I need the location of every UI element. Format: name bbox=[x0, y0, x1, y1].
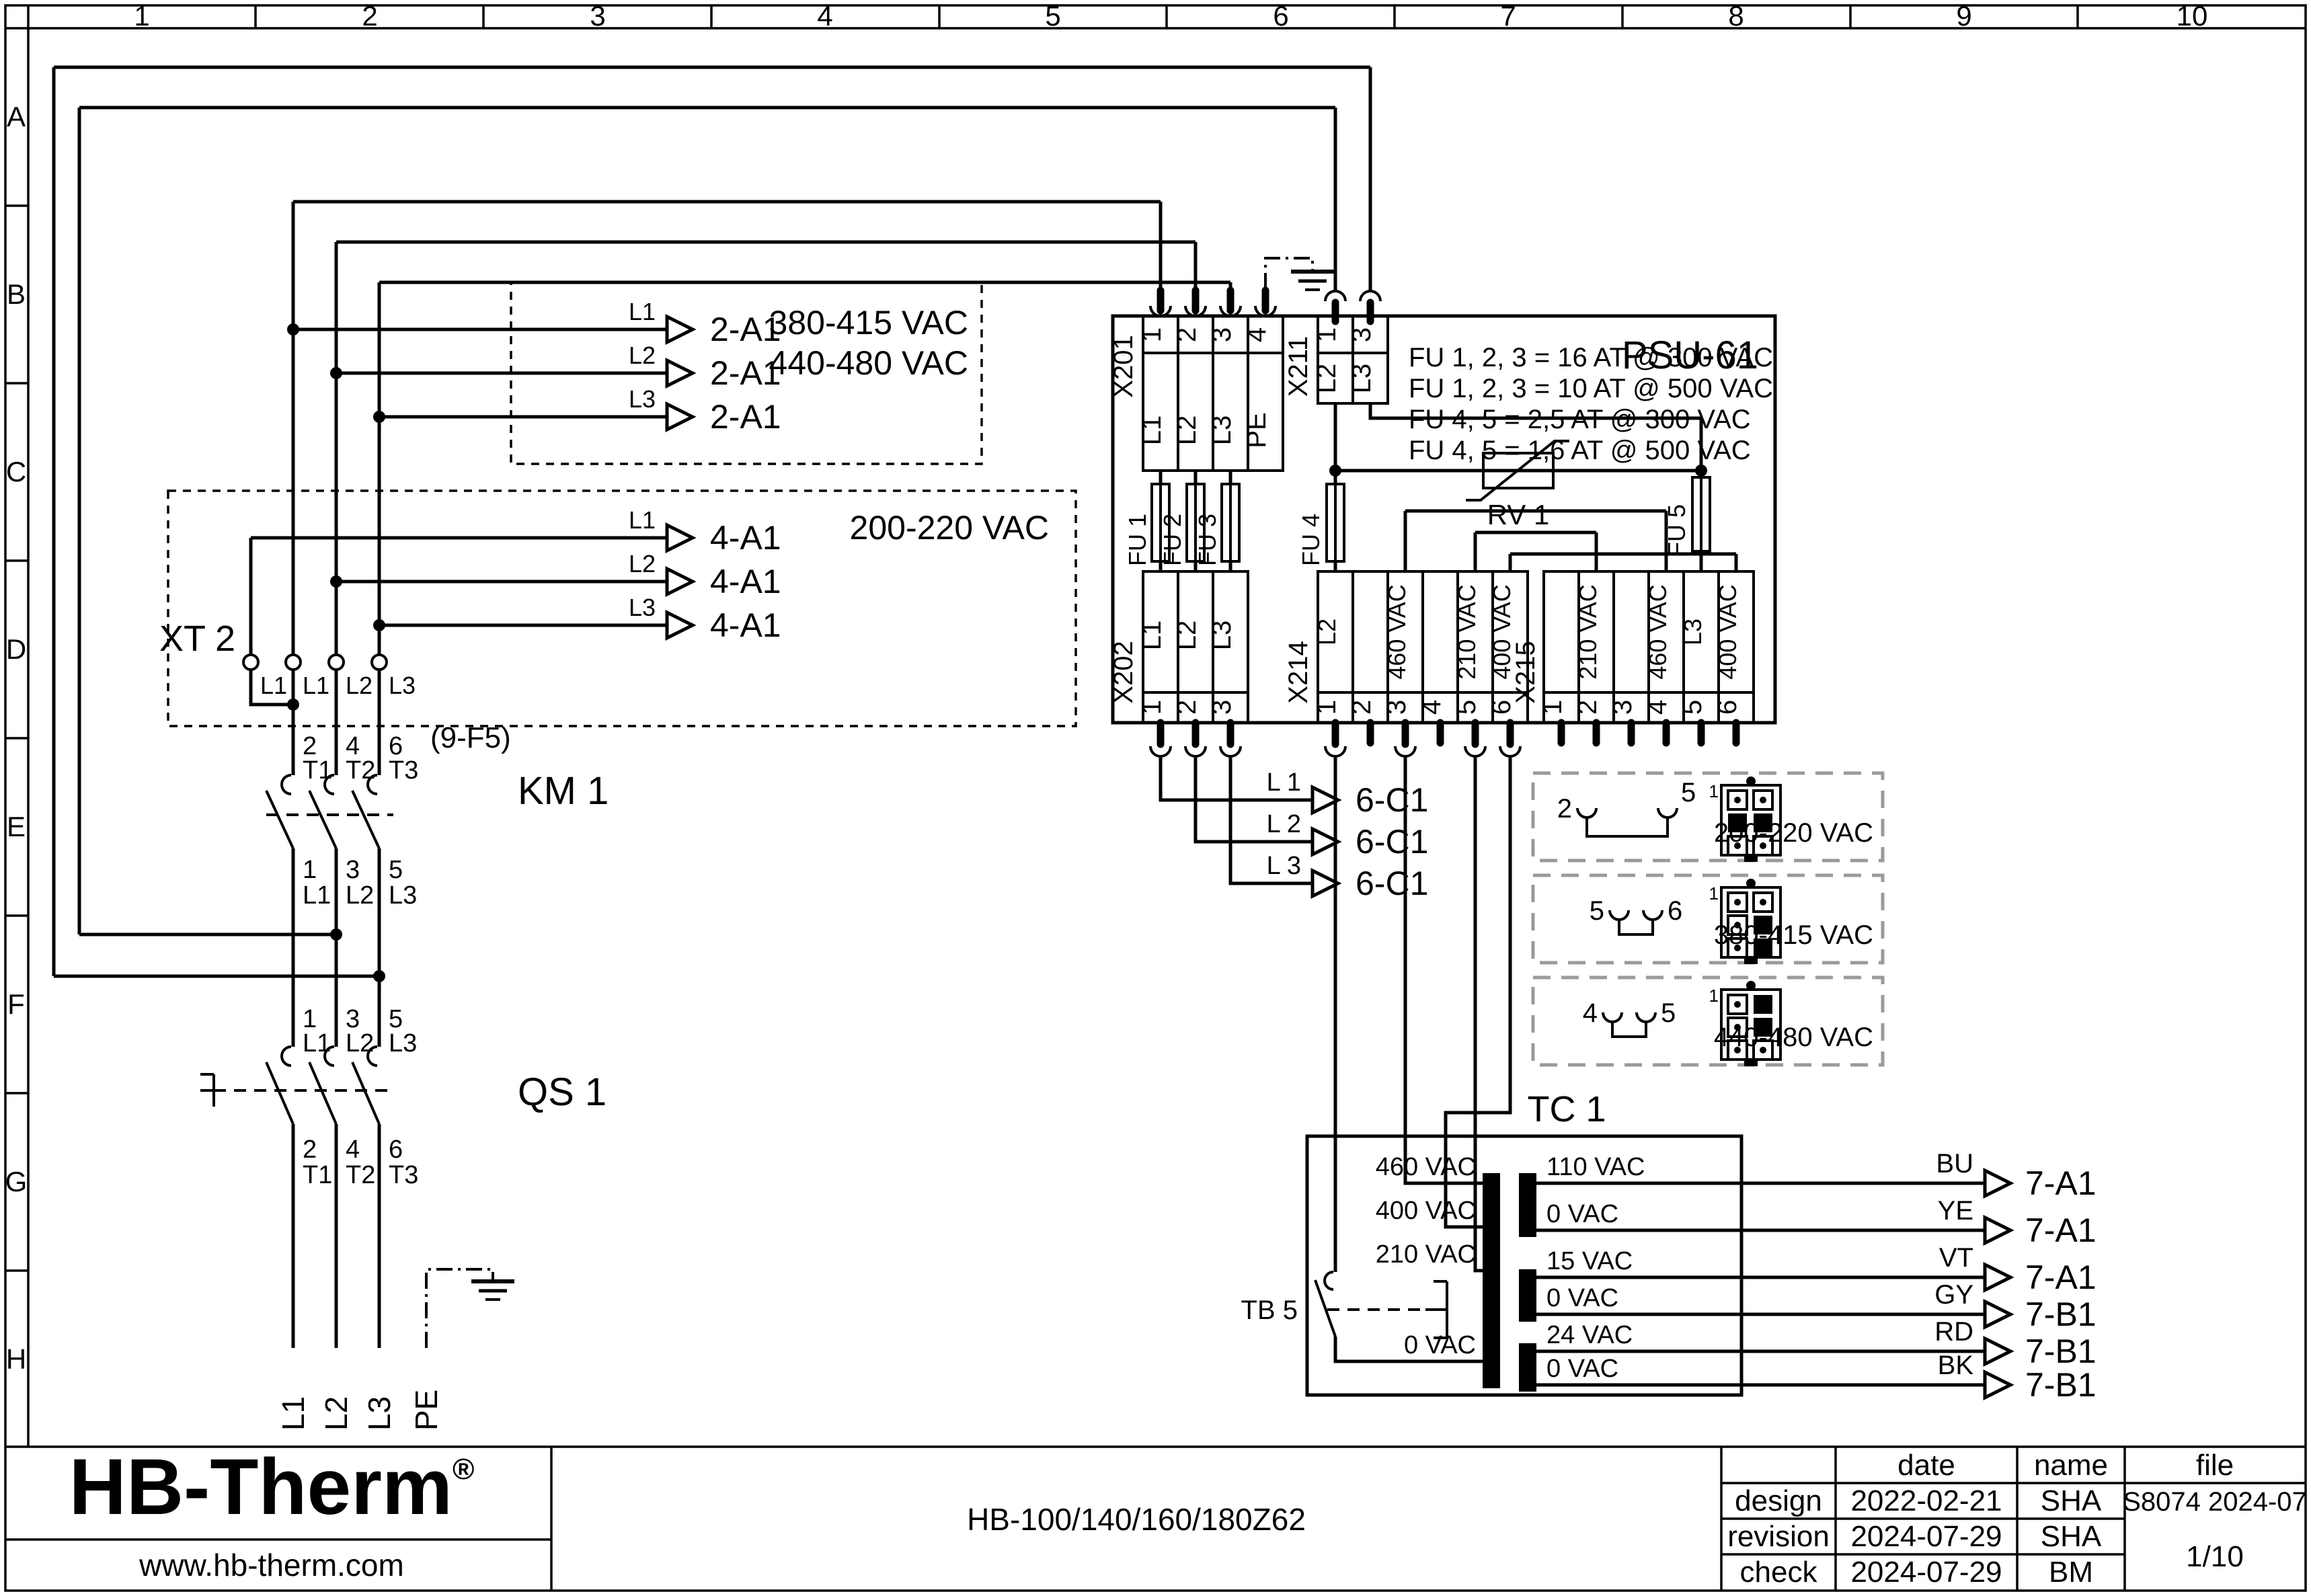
pole-label: T2 bbox=[346, 756, 375, 785]
row-label: B bbox=[7, 278, 26, 310]
pin-label: L3 bbox=[1207, 621, 1237, 651]
page-number: 1/10 bbox=[2186, 1540, 2244, 1573]
pin-num: 2 bbox=[1172, 700, 1202, 715]
phase-label-l3: L3 bbox=[362, 1396, 397, 1431]
plug-stub-icons-x215 bbox=[1561, 723, 1736, 743]
revision-date: 2024-07-29 bbox=[1850, 1520, 2002, 1553]
wire-label: L3 bbox=[629, 385, 656, 413]
tc1-secondary-core-2 bbox=[1519, 1269, 1536, 1322]
xt2-terminal-label: L1 bbox=[303, 672, 329, 699]
secondary-tap: 0 VAC bbox=[1546, 1355, 1618, 1383]
pin-num: 3 bbox=[1382, 700, 1411, 715]
terminal-xt2: XT 2 L1 L1 L2 L3 bbox=[159, 619, 416, 711]
pin-num: 1 bbox=[1312, 327, 1341, 342]
pole-num: 1 bbox=[303, 856, 317, 884]
row-design: design bbox=[1735, 1484, 1822, 1517]
row-label: G bbox=[5, 1166, 28, 1197]
psu-61: PSU-61 FU 1, 2, 3 = 16 AT @ 300 VAC FU 1… bbox=[1109, 258, 1775, 756]
col-label: 1 bbox=[134, 0, 149, 32]
secondary-tap: 110 VAC bbox=[1546, 1153, 1645, 1181]
selector-200-220: 2 5 1 200-220 VAC bbox=[1533, 773, 1883, 862]
terminal-x215: X215 1 2 3 4 5 6 210 VAC 460 VAC L3 400 … bbox=[1511, 561, 1754, 743]
secondary-tap: 15 VAC bbox=[1546, 1247, 1633, 1275]
pin-label: L2 bbox=[1172, 415, 1202, 446]
col-label: 3 bbox=[590, 0, 605, 32]
jumper-pin: 5 bbox=[1590, 896, 1604, 926]
selector-voltage: 380-415 VAC bbox=[1714, 920, 1873, 950]
wire-color: GY bbox=[1934, 1280, 1973, 1310]
pole-label: L2 bbox=[346, 881, 374, 910]
design-date: 2022-02-21 bbox=[1850, 1484, 2002, 1517]
rv1-label: RV 1 bbox=[1487, 499, 1550, 530]
pole-label: T3 bbox=[389, 1161, 418, 1189]
design-name: SHA bbox=[2041, 1484, 2102, 1517]
pole-num: 6 bbox=[389, 1135, 403, 1164]
x202-name: X202 bbox=[1109, 641, 1138, 703]
pole-label: L3 bbox=[389, 881, 417, 910]
voltage-selector-boxes: 2 5 1 200-220 VAC 5 6 1 bbox=[1533, 773, 1883, 1066]
wire-label: L 3 bbox=[1267, 852, 1301, 880]
primary-tap: 0 VAC bbox=[1404, 1331, 1476, 1359]
qs1-handle-icon bbox=[200, 1074, 214, 1107]
jumper-pin: 4 bbox=[1583, 998, 1598, 1028]
row-revision: revision bbox=[1727, 1520, 1830, 1553]
pin-num: 5 bbox=[1452, 700, 1481, 715]
row-label: F bbox=[7, 988, 25, 1020]
wire-label: L 2 bbox=[1267, 810, 1301, 838]
pin-label: L2 bbox=[1312, 364, 1341, 394]
wire-color: BU bbox=[1936, 1149, 1973, 1179]
pin-label: 460 VAC bbox=[1383, 584, 1411, 679]
th-file: file bbox=[2196, 1449, 2234, 1482]
km1-ref: (9-F5) bbox=[430, 721, 511, 754]
tc1-name: TC 1 bbox=[1527, 1089, 1606, 1129]
disconnector-qs1: QS 1 1 L1 3 L2 5 L3 2 T1 4 T2 6 T3 bbox=[200, 1005, 606, 1189]
jumper-pin: 5 bbox=[1681, 778, 1696, 807]
jumper-pin: 6 bbox=[1668, 896, 1682, 926]
wire-target: 2-A1 bbox=[710, 398, 781, 436]
pin-num: 2 bbox=[1347, 700, 1376, 715]
hv-voltage-line1: 380-415 VAC bbox=[769, 304, 968, 342]
pole-num: 5 bbox=[389, 856, 403, 884]
row-label: H bbox=[6, 1343, 26, 1375]
plug-socket-icons-x214 bbox=[1325, 723, 1520, 756]
wire-label: L1 bbox=[629, 298, 656, 325]
pin-label: 210 VAC bbox=[1574, 584, 1602, 679]
xt2-terminal-label: L3 bbox=[389, 672, 416, 699]
fuse-label: FU 2 bbox=[1159, 514, 1186, 566]
tb5-label: TB 5 bbox=[1241, 1295, 1298, 1325]
wire-label: L1 bbox=[629, 506, 656, 534]
pin-label: 460 VAC bbox=[1644, 584, 1672, 679]
arrow-4a1 bbox=[667, 525, 693, 551]
wire-target: 6-C1 bbox=[1356, 781, 1428, 819]
primary-tap: 460 VAC bbox=[1376, 1153, 1476, 1181]
pole-label: L3 bbox=[389, 1029, 417, 1058]
tc1-secondary-core-3 bbox=[1519, 1343, 1536, 1392]
jumper-pin: 5 bbox=[1661, 998, 1676, 1028]
fuse-label: FU 4 bbox=[1297, 514, 1325, 566]
wire-target: 6-C1 bbox=[1356, 865, 1428, 902]
wire-target: 4-A1 bbox=[710, 563, 781, 600]
pin-label: L3 bbox=[1347, 364, 1376, 394]
lv-voltage-box: L1 L2 L3 4-A1 4-A1 4-A1 200-220 VAC XT 2… bbox=[159, 491, 1076, 726]
plug-socket-icons-x202 bbox=[1150, 723, 1241, 756]
km1-pole-labels: 2 T1 4 T2 6 T3 1 L1 3 L2 5 L3 bbox=[303, 732, 418, 910]
hb-therm-logo: HB-Therm® bbox=[69, 1443, 475, 1531]
row-label: D bbox=[6, 633, 26, 665]
pe-label: PE bbox=[409, 1390, 444, 1431]
phase-label-l2: L2 bbox=[319, 1396, 354, 1431]
col-label: 8 bbox=[1728, 0, 1744, 32]
wire-color: BK bbox=[1938, 1351, 1974, 1380]
selector-380-415: 5 6 1 380-415 VAC bbox=[1533, 875, 1883, 964]
fuse-label: FU 3 bbox=[1193, 514, 1221, 566]
pin-label: 210 VAC bbox=[1453, 584, 1481, 679]
terminal-x211: X211 1 3 L2 L3 bbox=[1284, 291, 1388, 403]
pin-num: 5 bbox=[1678, 700, 1707, 715]
wire-target: 7-A1 bbox=[2025, 1259, 2097, 1296]
xt2-terminal-label: L2 bbox=[346, 672, 373, 699]
fuse-note: FU 4, 5 = 1,6 AT @ 500 VAC bbox=[1409, 436, 1751, 465]
pin-num: 1 bbox=[1137, 700, 1167, 715]
row-label: A bbox=[7, 101, 26, 132]
pin-label: PE bbox=[1242, 412, 1271, 448]
col-label: 6 bbox=[1273, 0, 1288, 32]
pin-label: L2 bbox=[1172, 621, 1202, 651]
doc-title: HB-100/140/160/180Z62 bbox=[967, 1502, 1306, 1537]
pin-num: 3 bbox=[1207, 327, 1237, 342]
earth-ground-icon bbox=[471, 1281, 514, 1300]
chassis-ground-icon bbox=[1291, 272, 1334, 290]
wire-color: YE bbox=[1938, 1196, 1973, 1226]
pin-num: 3 bbox=[1347, 327, 1376, 342]
secondary-tap: 0 VAC bbox=[1546, 1200, 1618, 1228]
km1-contacts bbox=[266, 775, 393, 848]
pin-label: L1 bbox=[1137, 621, 1167, 651]
fuses-fu1-fu3: FU 1 FU 2 FU 3 bbox=[1124, 471, 1239, 571]
col-label: 9 bbox=[1956, 0, 1971, 32]
pin-num: 1 bbox=[1312, 700, 1341, 715]
connector-pin1-label: 1 bbox=[1709, 986, 1719, 1006]
wire-target: 7-A1 bbox=[2025, 1211, 2097, 1249]
qs1-contacts bbox=[200, 1047, 393, 1124]
phase-label-l1: L1 bbox=[276, 1396, 311, 1431]
lv-voltage-title: 200-220 VAC bbox=[850, 509, 1049, 547]
pin-num: 1 bbox=[1137, 327, 1167, 342]
col-label: 2 bbox=[362, 0, 377, 32]
grid-column-ticks bbox=[256, 5, 2078, 28]
wire-target: 7-B1 bbox=[2025, 1332, 2097, 1370]
pole-label: T2 bbox=[346, 1161, 375, 1189]
th-name: name bbox=[2034, 1449, 2108, 1482]
pin-num: 4 bbox=[1242, 327, 1271, 342]
wire-label: L 1 bbox=[1267, 768, 1301, 797]
terminal-x202: X202 1 2 3 L1 L2 L3 bbox=[1109, 571, 1248, 756]
schematic-page: 1 2 3 4 5 6 7 8 9 10 A B C D E F G H bbox=[0, 0, 2311, 1596]
col-label: 4 bbox=[817, 0, 832, 32]
wire-target: 4-A1 bbox=[710, 606, 781, 644]
wire-target: 4-A1 bbox=[710, 519, 781, 557]
wire-target: 7-A1 bbox=[2025, 1164, 2097, 1202]
x211-name: X211 bbox=[1284, 336, 1313, 397]
fuse-label: FU 1 bbox=[1124, 514, 1151, 566]
wire-label: L2 bbox=[629, 550, 656, 577]
selector-440-480: 4 5 1 440-480 VAC bbox=[1533, 977, 1883, 1066]
col-label: 7 bbox=[1500, 0, 1516, 32]
grid-row-ticks bbox=[5, 206, 28, 1271]
file-id: S8074 2024-07 bbox=[2123, 1487, 2307, 1517]
jumper-pin: 2 bbox=[1557, 794, 1572, 824]
qs1-name: QS 1 bbox=[518, 1070, 606, 1114]
connector-pin1-label: 1 bbox=[1709, 883, 1719, 904]
fuse-note: FU 1, 2, 3 = 16 AT @ 300 VAC bbox=[1409, 343, 1773, 372]
pole-num: 4 bbox=[346, 1135, 360, 1164]
wire-color: VT bbox=[1939, 1243, 1973, 1273]
pin-label: 400 VAC bbox=[1714, 584, 1741, 679]
hv-voltage-box: L1 L2 L3 2-A1 2-A1 2-A1 380-415 VAC 440-… bbox=[287, 282, 982, 464]
wiring-diagram: 1 2 3 4 5 6 7 8 9 10 A B C D E F G H bbox=[0, 0, 2311, 1596]
fuse-note: FU 1, 2, 3 = 10 AT @ 500 VAC bbox=[1409, 374, 1773, 403]
th-date: date bbox=[1897, 1449, 1955, 1482]
title-block: HB-Therm® www.hb-therm.com HB-100/140/16… bbox=[5, 1443, 2307, 1591]
pin-label: L3 bbox=[1679, 619, 1707, 645]
primary-tap: 400 VAC bbox=[1376, 1197, 1476, 1225]
arrow-2a1 bbox=[667, 404, 693, 430]
wire-color: RD bbox=[1934, 1317, 1973, 1347]
x214-name: X214 bbox=[1284, 641, 1313, 703]
arrow-2a1 bbox=[667, 317, 693, 342]
incoming-supply: L1 L2 L3 PE bbox=[276, 1269, 514, 1431]
pole-label: T1 bbox=[303, 1161, 332, 1189]
pole-num: 3 bbox=[346, 856, 360, 884]
row-label: C bbox=[6, 456, 26, 487]
revision-name: SHA bbox=[2041, 1520, 2102, 1553]
wire-label: L3 bbox=[629, 594, 656, 621]
pin-num: 2 bbox=[1172, 327, 1202, 342]
wire-label: L2 bbox=[629, 342, 656, 369]
secondary-tap: 0 VAC bbox=[1546, 1284, 1618, 1312]
xt2-name: XT 2 bbox=[159, 619, 235, 659]
arrow-2a1 bbox=[667, 360, 693, 386]
pole-label: L1 bbox=[303, 1029, 331, 1058]
pin-num: 2 bbox=[1573, 700, 1602, 715]
xt2-terminal-label: L1 bbox=[260, 672, 287, 699]
c1-outgoing-wires: L 1 L 2 L 3 6-C1 6-C1 6-C1 bbox=[1161, 758, 1428, 902]
row-check: check bbox=[1740, 1556, 1818, 1589]
contactor-km1: (9-F5) KM 1 2 T1 4 T2 6 T3 1 L1 3 L2 5 L… bbox=[266, 721, 609, 910]
pin-label: L3 bbox=[1207, 415, 1237, 446]
pole-label: L2 bbox=[346, 1029, 374, 1058]
pin-num: 1 bbox=[1538, 700, 1567, 715]
pole-label: T3 bbox=[389, 756, 418, 785]
pole-label: L1 bbox=[303, 881, 331, 910]
connector-pin1-label: 1 bbox=[1709, 781, 1719, 801]
pin-label: L1 bbox=[1137, 415, 1167, 446]
x201-name: X201 bbox=[1109, 335, 1138, 397]
row-label: E bbox=[7, 811, 26, 842]
pole-num: 2 bbox=[303, 1135, 317, 1164]
km1-name: KM 1 bbox=[518, 769, 609, 813]
selector-voltage: 200-220 VAC bbox=[1714, 818, 1873, 848]
selector-voltage: 440-480 VAC bbox=[1714, 1023, 1873, 1052]
transformer-tc1: TC 1 TB 5 460 VAC 400 VAC 210 VAC 0 VAC … bbox=[1241, 758, 1985, 1395]
col-label: 10 bbox=[2177, 0, 2208, 32]
psu-fuse-notes: FU 1, 2, 3 = 16 AT @ 300 VAC FU 1, 2, 3 … bbox=[1409, 343, 1773, 465]
pin-num: 4 bbox=[1417, 700, 1446, 715]
thermal-trip-icon bbox=[1425, 1281, 1447, 1338]
hv-voltage-line2: 440-480 VAC bbox=[769, 344, 968, 382]
x215-name: X215 bbox=[1511, 641, 1540, 703]
arrow-4a1 bbox=[667, 569, 693, 594]
primary-tap: 210 VAC bbox=[1376, 1240, 1476, 1269]
plug-socket-icons-x201 bbox=[1150, 290, 1276, 316]
pin-num: 3 bbox=[1207, 700, 1237, 715]
tc1-secondary-core-1 bbox=[1519, 1173, 1536, 1237]
pin-num: 4 bbox=[1643, 700, 1672, 715]
pin-num: 3 bbox=[1608, 700, 1637, 715]
tc1-primary-core bbox=[1483, 1173, 1500, 1388]
wire-target: 7-B1 bbox=[2025, 1366, 2097, 1404]
pin-label: L2 bbox=[1313, 619, 1341, 645]
pole-label: T1 bbox=[303, 756, 332, 785]
arrow-4a1 bbox=[667, 612, 693, 638]
check-date: 2024-07-29 bbox=[1850, 1556, 2002, 1589]
wire-target: 7-B1 bbox=[2025, 1295, 2097, 1333]
check-name: BM bbox=[2049, 1556, 2093, 1589]
website-link: www.hb-therm.com bbox=[139, 1548, 404, 1583]
col-label: 5 bbox=[1045, 0, 1060, 32]
secondary-tap: 24 VAC bbox=[1546, 1321, 1633, 1349]
pin-num: 6 bbox=[1713, 700, 1742, 715]
wire-target: 6-C1 bbox=[1356, 823, 1428, 861]
qs1-pole-labels: 1 L1 3 L2 5 L3 2 T1 4 T2 6 T3 bbox=[303, 1005, 418, 1189]
